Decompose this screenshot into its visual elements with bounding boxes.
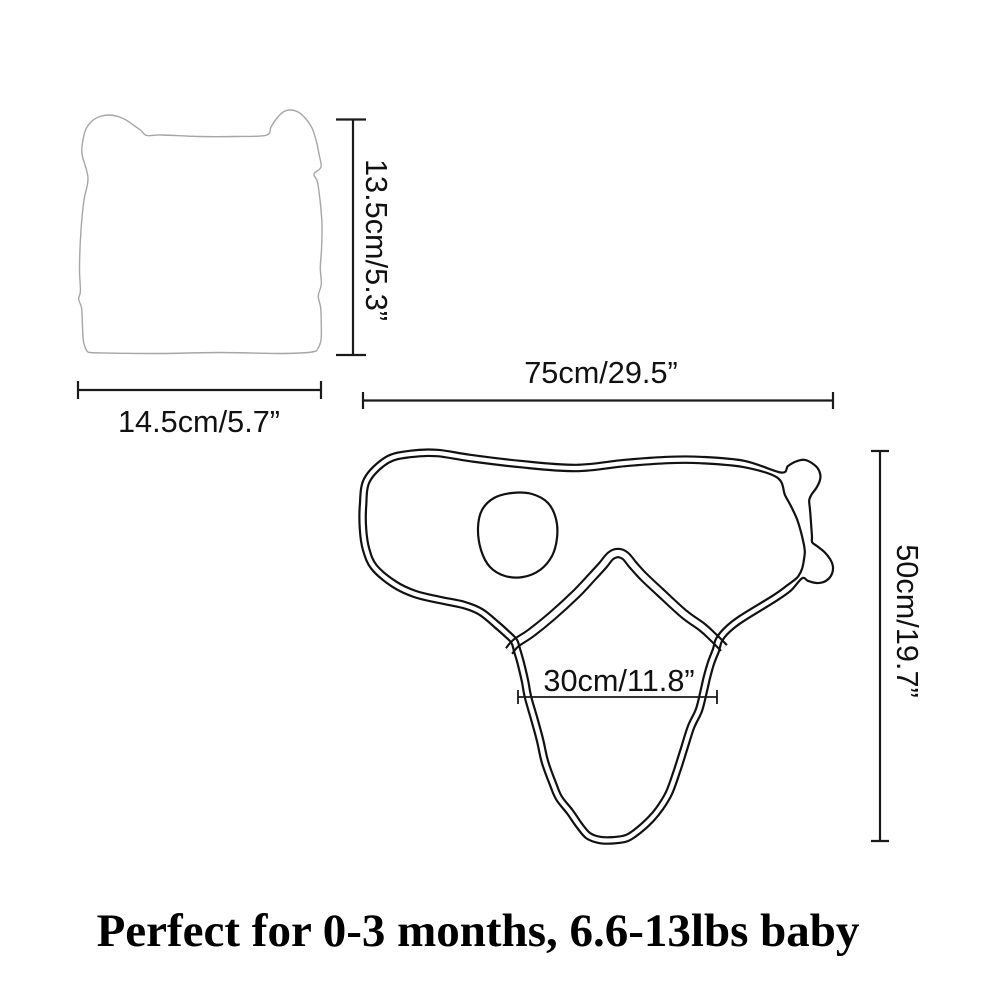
svg-text:13.5cm/5.3”: 13.5cm/5.3” — [359, 159, 394, 321]
svg-text:Perfect for 0-3 months, 6.6-13: Perfect for 0-3 months, 6.6-13lbs baby — [97, 905, 860, 957]
svg-text:50cm/19.7”: 50cm/19.7” — [890, 544, 925, 698]
svg-text:75cm/29.5”: 75cm/29.5” — [524, 355, 678, 390]
svg-text:30cm/11.8”: 30cm/11.8” — [543, 663, 694, 698]
svg-text:14.5cm/5.7”: 14.5cm/5.7” — [118, 404, 280, 439]
